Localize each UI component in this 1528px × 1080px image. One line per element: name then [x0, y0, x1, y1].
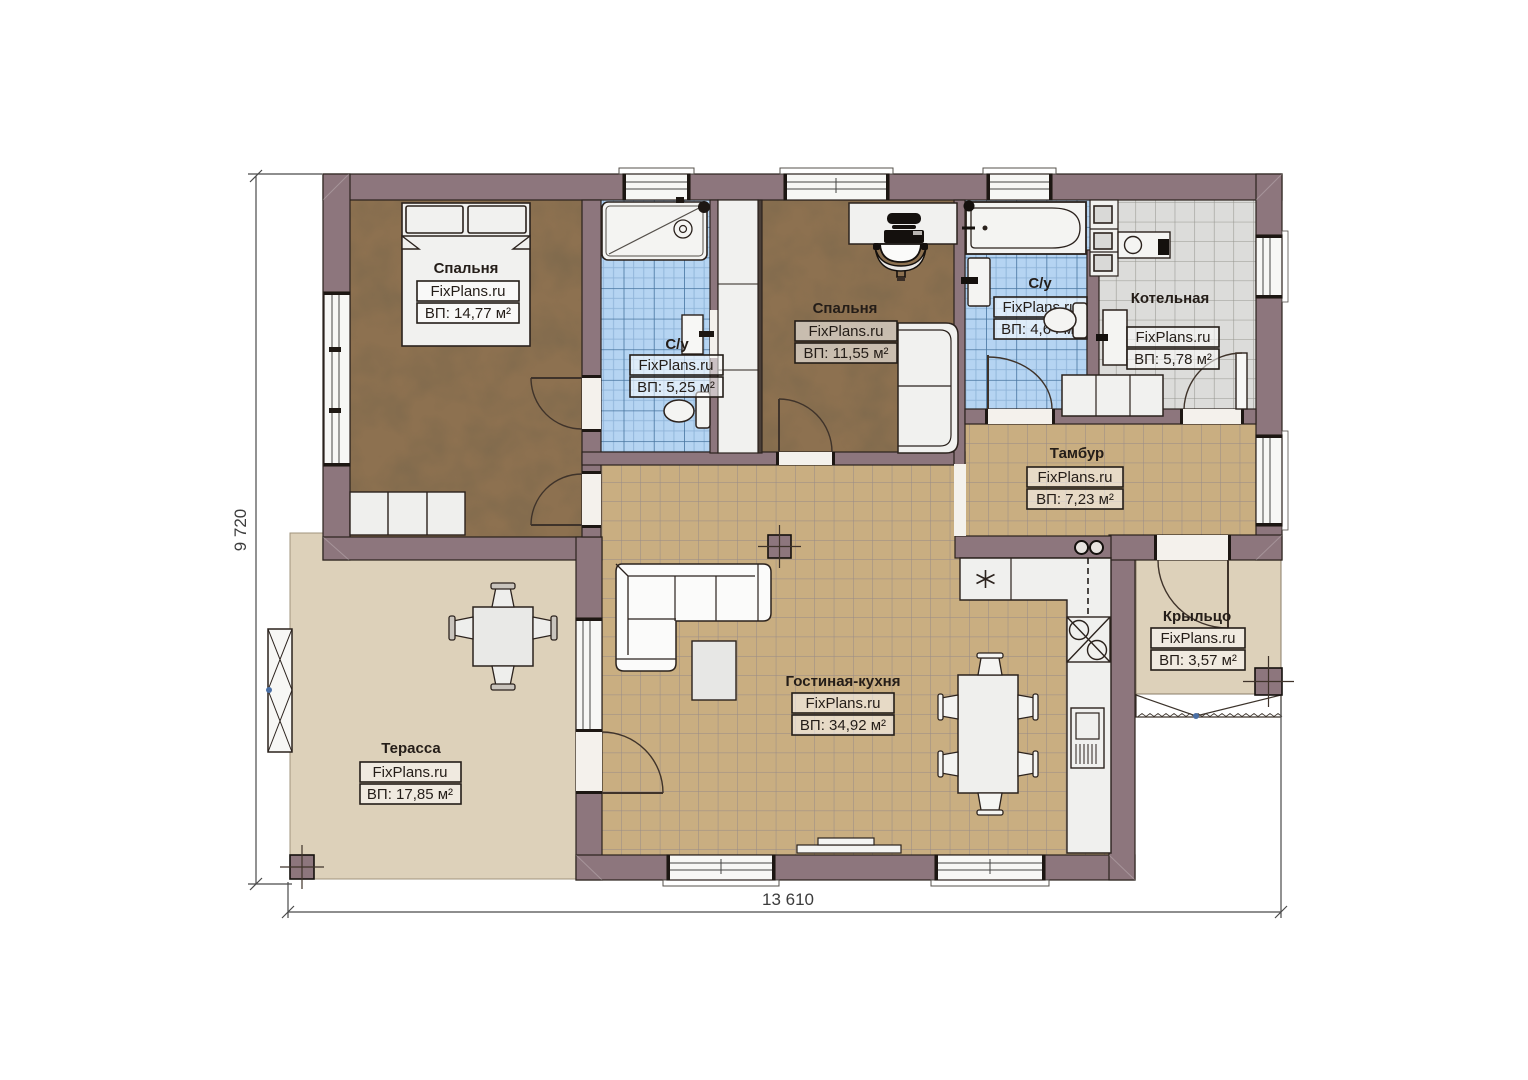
svg-text:FixPlans.ru: FixPlans.ru: [1037, 469, 1112, 486]
svg-text:Спальня: Спальня: [434, 260, 499, 277]
svg-text:ВП: 3,57 м²: ВП: 3,57 м²: [1159, 652, 1237, 669]
svg-text:ВП: 17,85 м²: ВП: 17,85 м²: [367, 786, 453, 803]
svg-text:13 610: 13 610: [762, 890, 814, 909]
svg-text:ВП: 7,23 м²: ВП: 7,23 м²: [1036, 491, 1114, 508]
svg-text:Котельная: Котельная: [1131, 290, 1210, 307]
svg-text:FixPlans.ru: FixPlans.ru: [1135, 329, 1210, 346]
svg-text:FixPlans.ru: FixPlans.ru: [1160, 630, 1235, 647]
svg-text:ВП: 5,78 м²: ВП: 5,78 м²: [1134, 351, 1212, 368]
svg-text:FixPlans.ru: FixPlans.ru: [430, 283, 505, 300]
svg-text:Спальня: Спальня: [813, 300, 878, 317]
svg-text:FixPlans.ru: FixPlans.ru: [805, 695, 880, 712]
svg-text:FixPlans.ru: FixPlans.ru: [808, 323, 883, 340]
svg-text:ВП: 34,92 м²: ВП: 34,92 м²: [800, 717, 886, 734]
svg-text:ВП: 14,77 м²: ВП: 14,77 м²: [425, 305, 511, 322]
svg-text:Крыльцо: Крыльцо: [1163, 608, 1231, 625]
svg-text:Терасса: Терасса: [381, 740, 441, 757]
svg-text:FixPlans.ru: FixPlans.ru: [638, 357, 713, 374]
svg-text:Гостиная-кухня: Гостиная-кухня: [786, 673, 901, 690]
svg-text:FixPlans.ru: FixPlans.ru: [372, 764, 447, 781]
svg-text:Тамбур: Тамбур: [1050, 445, 1104, 462]
svg-text:С/у: С/у: [665, 336, 689, 353]
svg-text:ВП: 5,25 м²: ВП: 5,25 м²: [637, 379, 715, 396]
svg-text:ВП: 11,55 м²: ВП: 11,55 м²: [803, 345, 888, 362]
svg-text:9 720: 9 720: [231, 509, 250, 552]
svg-text:С/у: С/у: [1028, 275, 1052, 292]
